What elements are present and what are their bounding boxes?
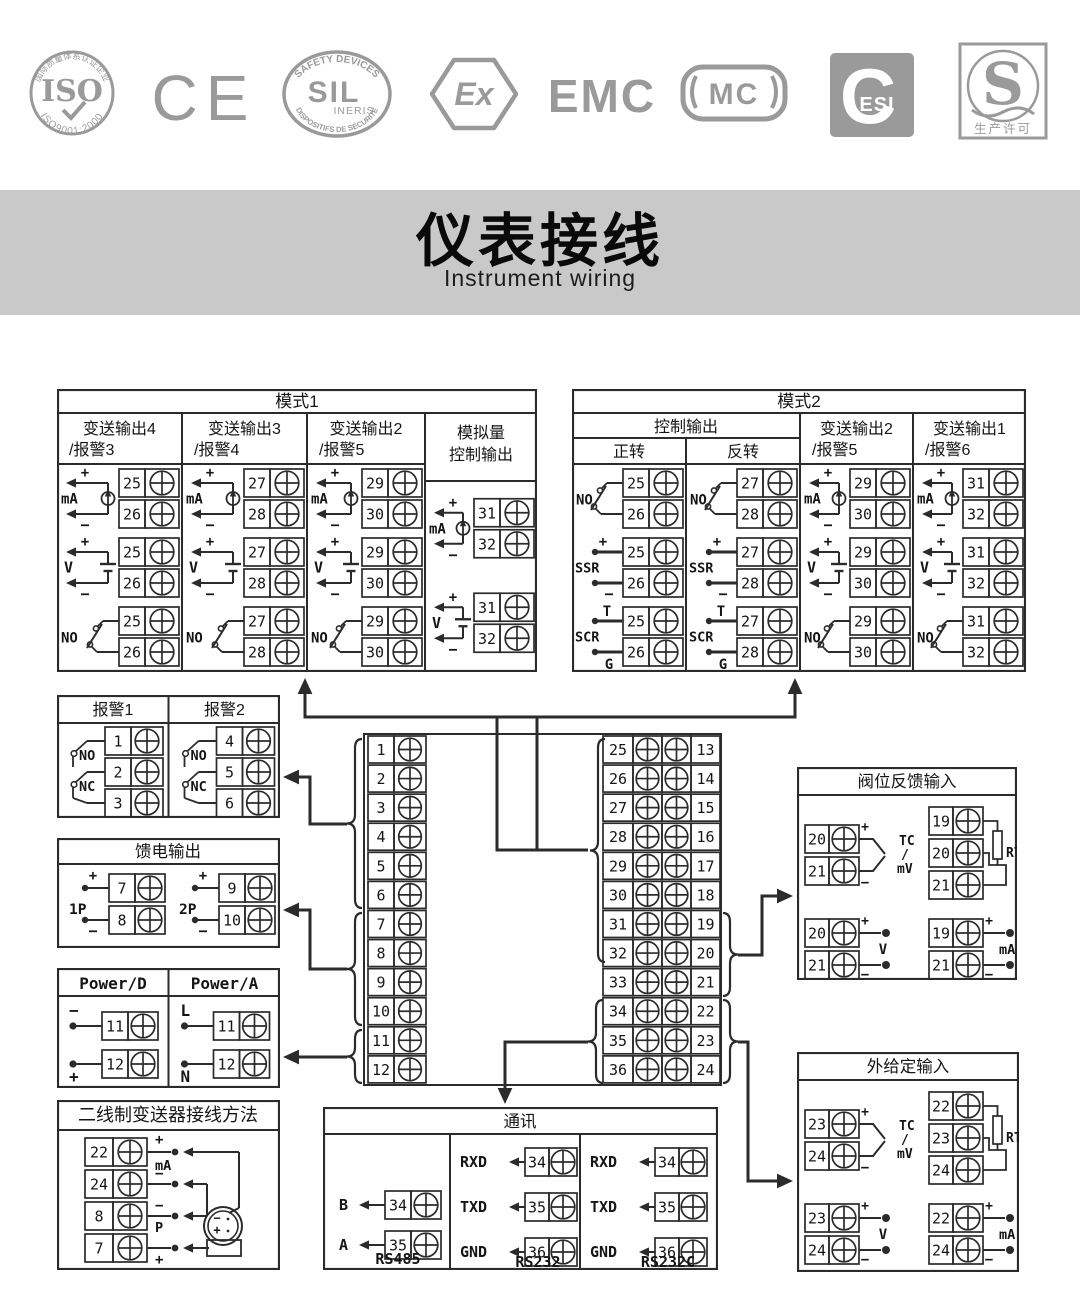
label: 21 (808, 863, 826, 881)
screw-terminal-icon (243, 789, 275, 817)
signal-label: RXD (460, 1153, 487, 1171)
terminal-number: 8 (368, 940, 394, 967)
label: − (330, 585, 339, 603)
title-banner: 仪表接线 Instrument wiring (0, 190, 1080, 315)
terminal-2: 2 (105, 758, 163, 786)
terminal-number: 3 (368, 794, 394, 821)
label: NO (61, 631, 78, 647)
label: 28 (741, 506, 759, 524)
terminal-number: 21 (929, 951, 953, 979)
screw-terminal-icon (876, 569, 910, 597)
label: T (603, 604, 611, 620)
terminal-11: 11 (214, 1012, 270, 1040)
terminal-29: 29 (362, 469, 422, 497)
power-header: Power/A (191, 974, 259, 993)
screw-terminal-icon (131, 758, 163, 786)
screw-terminal-icon (662, 969, 691, 996)
terminal-number: 24 (805, 1236, 829, 1264)
screw-terminal-icon (549, 1193, 577, 1221)
terminal-number: 27 (244, 469, 270, 497)
label: + (89, 868, 97, 884)
label: 26 (627, 506, 645, 524)
terminal-number: 28 (603, 823, 633, 850)
column-header: /报警5 (319, 441, 364, 459)
screw-terminal-icon (876, 607, 910, 635)
terminal-27: 27 (244, 538, 304, 566)
screw-terminal-icon (829, 857, 859, 885)
label: 27 (741, 613, 759, 631)
terminal-number: 24 (805, 1142, 829, 1170)
label: + (937, 465, 945, 481)
terminal-number: 35 (525, 1193, 549, 1221)
wiring-cell-mA: 3132+−mA (917, 465, 1023, 534)
label: − (861, 1252, 869, 1268)
terminal-34: 34 (525, 1148, 577, 1176)
terminal-31: 31 (963, 607, 1023, 635)
wiring-cell-NO: 2526NO (61, 607, 179, 666)
terminal-21: 21 (805, 857, 859, 885)
terminal-4: 4 (217, 727, 275, 755)
terminal-30: 30 (850, 638, 910, 666)
label: 20 (808, 831, 826, 849)
column-header: 变送输出2 (820, 420, 893, 438)
screw-terminal-icon (989, 569, 1023, 597)
screw-terminal-icon (500, 530, 534, 558)
terminal-number: 31 (963, 469, 989, 497)
label: + (81, 465, 89, 481)
arrowhead-icon (191, 578, 201, 587)
label: G (719, 657, 727, 672)
terminal-30: 30 (362, 569, 422, 597)
terminal-26: 26 (119, 500, 179, 528)
screw-terminal-icon (662, 940, 691, 967)
terminal-25: 25 (623, 469, 683, 497)
wiring-cell-NO: 3132NO (917, 607, 1023, 666)
screw-terminal-icon (649, 469, 683, 497)
box-title: 阀位反馈输入 (858, 772, 957, 791)
label: 31 (967, 544, 985, 562)
label: INERIS (333, 105, 374, 117)
wiring-cell-mA: 2728+−mA (186, 465, 304, 534)
label: 26 (123, 575, 141, 593)
label: 34 (528, 1154, 546, 1172)
screw-terminal-icon (500, 499, 534, 527)
label: mA (999, 942, 1015, 958)
label: 12 (217, 1056, 235, 1074)
label: 3 (376, 799, 385, 817)
terminal-number: 26 (119, 569, 145, 597)
screw-terminal-icon (394, 1056, 426, 1083)
column-header: 控制输出 (449, 446, 513, 464)
label: + (206, 534, 214, 550)
terminal-24: 24 (805, 1142, 859, 1170)
screw-terminal-icon (763, 538, 797, 566)
label: / (901, 1133, 909, 1148)
terminal-number: 26 (623, 638, 649, 666)
terminal-number: 26 (119, 638, 145, 666)
terminal-number: 24 (929, 1156, 953, 1184)
feed-output-box: 馈电输出1P+−782P+−910 (57, 838, 280, 948)
terminal-21: 21 (929, 871, 983, 899)
screw-terminal-icon (953, 1092, 983, 1120)
label: + (861, 820, 869, 835)
label: 5 (376, 857, 385, 875)
terminal-number: 31 (603, 910, 633, 937)
terminal-27: 27 (737, 538, 797, 566)
screw-terminal-icon (270, 569, 304, 597)
terminal-25: 25 (623, 607, 683, 635)
label: 36 (609, 1061, 627, 1079)
label: 35 (609, 1032, 627, 1050)
terminal-number: 26 (623, 500, 649, 528)
wiring-cell-V: 2930+−V (314, 534, 422, 603)
screw-terminal-icon (131, 727, 163, 755)
screw-terminal-icon (388, 638, 422, 666)
communication-box: 通讯B34A35RS485RXD34TXD35GND36RS232RXD34TX… (323, 1107, 718, 1270)
terminal-11: 11 (102, 1012, 158, 1040)
label: NC (191, 779, 207, 795)
atex-ex-logo: Ex (430, 54, 518, 134)
terminal-number: 29 (362, 538, 388, 566)
label: − (69, 1001, 79, 1020)
label: ESI (859, 94, 894, 116)
arrowhead-icon (777, 889, 793, 904)
label: 30 (366, 644, 384, 662)
label: 25 (627, 613, 645, 631)
label: − (448, 640, 457, 658)
wiring-cell-mA: 2930+−mA (311, 465, 422, 534)
arrowhead-icon (316, 578, 326, 587)
label: 24 (808, 1148, 826, 1166)
label: P (155, 1220, 163, 1236)
label: 6 (376, 886, 385, 904)
terminal-number: 22 (691, 998, 720, 1025)
label: 7 (94, 1240, 103, 1258)
screw-terminal-icon (662, 794, 691, 821)
label: 10 (372, 1003, 390, 1021)
screw-terminal-icon (500, 624, 534, 652)
screw-terminal-icon (113, 1202, 147, 1230)
label: 32 (967, 506, 985, 524)
arrowhead-icon (434, 603, 444, 612)
label: 21 (696, 974, 714, 992)
screw-terminal-icon (240, 1050, 270, 1078)
terminal-number: 31 (474, 499, 500, 527)
label: 21 (932, 877, 950, 895)
label: NO (576, 493, 593, 509)
arrowhead-icon (809, 509, 819, 518)
screw-terminal-icon (113, 1138, 147, 1166)
signal-label: TXD (460, 1198, 487, 1216)
terminal-26: 26 (119, 569, 179, 597)
label: 25 (627, 475, 645, 493)
screw-terminal-icon (829, 1204, 859, 1232)
screw-terminal-icon (953, 807, 983, 835)
screw-terminal-icon (633, 940, 662, 967)
column-header: 变送输出1 (933, 420, 1006, 438)
label: 24 (696, 1061, 714, 1079)
label: 8 (376, 945, 385, 963)
terminal-number: 30 (850, 500, 876, 528)
label: 23 (808, 1116, 826, 1134)
terminal-number: 25 (119, 469, 145, 497)
power-box: Power/D−11+12Power/AL11N12 (57, 968, 280, 1088)
label: 17 (696, 857, 714, 875)
terminal-25: 25 (119, 538, 179, 566)
label: − (861, 1160, 869, 1176)
box-title: 外给定输入 (867, 1057, 950, 1076)
label: 29 (854, 544, 872, 562)
terminal-34: 34 (385, 1191, 441, 1219)
wiring-cell-mA: 2526+−mA (61, 465, 179, 534)
terminal-number: 29 (362, 469, 388, 497)
screw-terminal-icon (989, 469, 1023, 497)
screw-terminal-icon (131, 789, 163, 817)
label: L (181, 1001, 191, 1020)
label: NO (917, 631, 934, 647)
terminal-number: 15 (691, 794, 720, 821)
label: 28 (248, 575, 266, 593)
label: 14 (696, 770, 714, 788)
arrowhead-icon (298, 678, 313, 694)
terminal-number: 18 (691, 881, 720, 908)
terminal-number: 10 (219, 906, 245, 934)
screw-terminal-icon (135, 874, 165, 902)
screw-terminal-icon (876, 638, 910, 666)
terminal-number: 17 (691, 852, 720, 879)
terminal-number: 16 (691, 823, 720, 850)
label: 19 (696, 915, 714, 933)
screw-terminal-icon (829, 825, 859, 853)
terminal-number: 23 (691, 1027, 720, 1054)
terminal-number: 27 (737, 538, 763, 566)
terminal-number: 32 (963, 638, 989, 666)
terminal-10: 10 (219, 906, 275, 934)
terminal-35: 35 (655, 1193, 707, 1221)
label: V (64, 559, 73, 577)
label: 29 (609, 857, 627, 875)
label: 15 (696, 799, 714, 817)
arrowhead-icon (316, 478, 326, 487)
column-header: 变送输出2 (330, 420, 403, 438)
page-subtitle: Instrument wiring (444, 265, 636, 292)
label: + (69, 1067, 79, 1086)
terminal-number: 11 (102, 1012, 128, 1040)
arrowhead-icon (434, 508, 444, 517)
signal-label: TXD (590, 1198, 617, 1216)
screw-terminal-icon (633, 736, 662, 763)
terminal-27: 27 (737, 607, 797, 635)
label: 33 (609, 974, 627, 992)
label: 31 (609, 915, 627, 933)
terminal-24: 24 (805, 1236, 859, 1264)
label: − (155, 1198, 163, 1214)
label: + (155, 1132, 163, 1148)
label: 22 (90, 1144, 108, 1162)
label: 16 (696, 828, 714, 846)
screw-terminal-icon (388, 607, 422, 635)
terminal-number: 6 (217, 789, 243, 817)
wiring-cell-mA: 2930+−mA (804, 465, 910, 534)
label: G (605, 657, 613, 672)
label: 23 (808, 1210, 826, 1228)
screw-terminal-icon (829, 1142, 859, 1170)
iso-certification-logo: 国际质量体系认证企业ISO9001:2000ISO (26, 46, 118, 144)
label: 20 (808, 925, 826, 943)
terminal-number: 2 (368, 765, 394, 792)
screw-terminal-icon (649, 538, 683, 566)
terminal-number: 36 (603, 1056, 633, 1083)
label: 生产许可 (974, 122, 1032, 136)
group-header: 控制输出 (654, 418, 718, 436)
terminal-26: 26 (623, 569, 683, 597)
screw-terminal-icon (394, 852, 426, 879)
label: 19 (932, 925, 950, 943)
label: SCR (575, 630, 600, 646)
ce-mark-logo: CE (152, 58, 257, 133)
label: 27 (248, 613, 266, 631)
screw-terminal-icon (388, 569, 422, 597)
screw-terminal-icon (243, 758, 275, 786)
label: 28 (741, 644, 759, 662)
terminal-number: 19 (691, 910, 720, 937)
screw-terminal-icon (953, 951, 983, 979)
label: V (920, 559, 929, 577)
label: 25 (609, 741, 627, 759)
screw-terminal-icon (829, 951, 859, 979)
label: 18 (696, 886, 714, 904)
screw-terminal-icon (633, 1027, 662, 1054)
screw-terminal-icon (662, 736, 691, 763)
terminal-number: 33 (603, 969, 633, 996)
label: + (81, 534, 89, 550)
terminal-30: 30 (362, 500, 422, 528)
label: N (181, 1067, 191, 1086)
terminal-number: 28 (244, 500, 270, 528)
label: 26 (123, 644, 141, 662)
label: SSR (575, 561, 600, 577)
label: 32 (478, 630, 496, 648)
label: − (88, 922, 97, 940)
screw-terminal-icon (388, 538, 422, 566)
alarm1-alarm2-box: 报警1123NONC报警2456NONC (57, 695, 280, 818)
terminal-26: 26 (623, 500, 683, 528)
label: 11 (372, 1032, 390, 1050)
screw-terminal-icon (662, 765, 691, 792)
terminal-number: 32 (963, 569, 989, 597)
terminal-number: 9 (368, 969, 394, 996)
signal-label: GND (460, 1243, 487, 1261)
screw-terminal-icon (270, 538, 304, 566)
label: 30 (609, 886, 627, 904)
terminal-32: 32 (963, 569, 1023, 597)
terminal-26: 26 (119, 638, 179, 666)
signal-label: RXD (590, 1153, 617, 1171)
screw-terminal-icon (394, 998, 426, 1025)
label: 25 (627, 544, 645, 562)
label: mA (311, 492, 328, 508)
terminal-number: 35 (603, 1027, 633, 1054)
terminal-number: 26 (623, 569, 649, 597)
label: 11 (106, 1018, 124, 1036)
label: 30 (366, 506, 384, 524)
screw-terminal-icon (989, 638, 1023, 666)
terminal-20: 20 (805, 825, 859, 853)
terminal-number: 25 (119, 538, 145, 566)
label: 27 (741, 544, 759, 562)
wiring-cell-V: 2728+−V (189, 534, 304, 603)
terminal-8: 8 (109, 906, 165, 934)
label: 30 (854, 575, 872, 593)
wiring-cell-V: 2526+−V (64, 534, 179, 603)
terminal-number: 21 (805, 857, 829, 885)
arrowhead-icon (283, 1050, 299, 1065)
alarm-header: 报警1 (93, 701, 134, 719)
terminal-number: 20 (929, 839, 953, 867)
label: − (80, 516, 89, 534)
terminal-23: 23 (805, 1204, 859, 1232)
terminal-number: 35 (655, 1193, 679, 1221)
label: mA (429, 521, 446, 537)
screw-terminal-icon (633, 910, 662, 937)
screw-terminal-icon (876, 500, 910, 528)
screw-terminal-icon (633, 823, 662, 850)
screw-terminal-icon (145, 569, 179, 597)
terminal-number: 30 (603, 881, 633, 908)
power-header: Power/D (79, 974, 146, 993)
label: 32 (609, 945, 627, 963)
terminal-number: 28 (244, 638, 270, 666)
cesi-logo: CESI (830, 53, 914, 139)
label: mA (804, 492, 821, 508)
label: 24 (808, 1242, 826, 1260)
screw-terminal-icon (145, 607, 179, 635)
label: NO (311, 631, 328, 647)
terminal-28: 28 (737, 500, 797, 528)
terminal-34: 34 (655, 1148, 707, 1176)
terminal-number: 10 (368, 998, 394, 1025)
label: 22 (696, 1003, 714, 1021)
arrowhead-icon (498, 1088, 513, 1104)
terminal-12: 12 (102, 1050, 158, 1078)
label: 34 (658, 1154, 676, 1172)
arrowhead-icon (316, 509, 326, 518)
column-header: /报警6 (925, 441, 970, 459)
terminal-30: 30 (362, 638, 422, 666)
label: − (861, 875, 869, 891)
label: T (717, 604, 725, 620)
label: NO (186, 631, 203, 647)
wiring-cell-NO: 2728NO (690, 469, 797, 528)
label: mA (61, 492, 78, 508)
screw-terminal-icon (829, 919, 859, 947)
wiring-cell-mA: 3132+−mA (429, 495, 534, 564)
wiring-cell-NO: 2526NO (576, 469, 683, 528)
terminal-number: 28 (737, 500, 763, 528)
screw-terminal-icon (411, 1191, 441, 1219)
terminal-number: 30 (362, 638, 388, 666)
terminal-number: 27 (603, 794, 633, 821)
terminal-21: 21 (805, 951, 859, 979)
signal-label: B (339, 1196, 348, 1214)
terminal-number: 21 (805, 951, 829, 979)
screw-terminal-icon (270, 638, 304, 666)
label: mV (897, 1147, 913, 1162)
terminal-number: 32 (474, 530, 500, 558)
terminal-number: 27 (737, 607, 763, 635)
terminal-number: 3 (105, 789, 131, 817)
label: + (985, 914, 993, 929)
